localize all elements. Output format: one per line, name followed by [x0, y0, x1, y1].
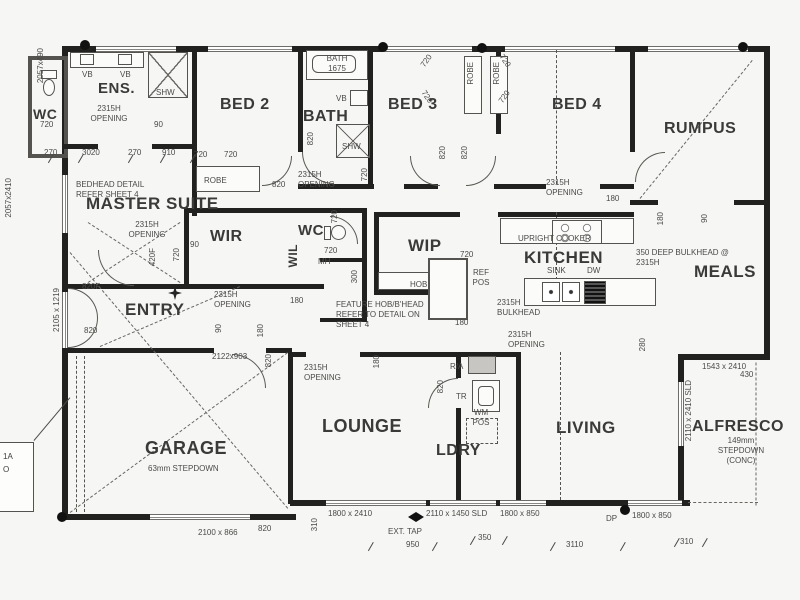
label-dim-720-robe3a: 720 — [419, 53, 435, 70]
label-opening-kitchen: 2315H OPENING — [508, 330, 566, 350]
label-sink-label: SINK — [547, 266, 566, 276]
label-dim-280: 280 — [638, 338, 648, 351]
wall — [600, 184, 634, 189]
dim-tick — [432, 542, 438, 551]
wall — [62, 284, 184, 289]
dim-tick — [550, 542, 556, 551]
label-dim-720-wip: 720 — [460, 250, 473, 260]
wall — [494, 184, 546, 189]
window — [62, 175, 68, 233]
downpipe-dot — [477, 43, 487, 53]
door-arc-bed4 — [466, 156, 496, 186]
wall — [288, 352, 293, 504]
label-dw-label: DW — [587, 266, 600, 276]
label-dim-720-wc1: 720 — [40, 120, 53, 130]
tap-valve-icon — [416, 512, 424, 522]
room-label-wir: WIR — [210, 228, 243, 246]
dashed-line — [556, 50, 557, 184]
label-note-bulkhead-meals: 350 DEEP BULKHEAD @ 2315H — [636, 248, 756, 268]
room-label-rumpus: RUMPUS — [664, 120, 736, 138]
label-dim-1800x2410: 1800 x 2410 — [328, 509, 372, 519]
label-dim-720-robe2a: 720 — [194, 150, 207, 160]
label-opening-master: 2315H OPENING — [116, 220, 178, 240]
label-vb-bath: VB — [336, 94, 347, 104]
label-opening-ens: 2315H OPENING — [80, 104, 138, 124]
toilet-icon — [324, 226, 331, 240]
wall — [374, 212, 460, 217]
label-vb-ens-1: VB — [82, 70, 93, 80]
dim-tick — [470, 536, 476, 545]
label-ext-tap: EXT. TAP — [388, 527, 422, 537]
label-dim-720-master: 720 — [172, 248, 182, 261]
downpipe-dot — [80, 40, 90, 50]
door-arc-bed3 — [410, 156, 440, 186]
label-dim-1800x850-a: 1800 x 850 — [500, 509, 540, 519]
label-note-feature-hob: FEATURE HOB/B'HEAD REFER TO DETAIL ON SH… — [336, 300, 440, 330]
window — [382, 46, 472, 52]
label-dim-2110x2410-sld: 2110 x 2410 SLD — [684, 380, 694, 441]
downpipe-dot — [620, 505, 630, 515]
window — [648, 46, 748, 52]
label-robe-bed2: ROBE — [204, 176, 227, 186]
downpipe-dot — [738, 42, 748, 52]
label-dim-950: 950 — [406, 540, 419, 550]
window — [326, 500, 426, 506]
label-opening-wir: 2315H OPENING — [214, 290, 274, 310]
room-label-bed2: BED 2 — [220, 96, 270, 114]
label-dim-180-entry: 180 — [256, 324, 266, 337]
downpipe-dot — [57, 512, 67, 522]
label-dim-270a: 270 — [44, 148, 57, 158]
wall — [516, 352, 521, 502]
roof-line-alfresco — [688, 502, 758, 503]
wall — [678, 354, 770, 360]
label-dim-180-lounge: 180 — [372, 355, 382, 368]
label-dim-180-rumpus: 180 — [606, 194, 619, 204]
dashed-line-garage — [84, 356, 85, 512]
label-dim-310-left: 310 — [310, 518, 320, 531]
edge-note-line1: 1A — [3, 451, 31, 464]
window-garage — [150, 514, 250, 520]
wall — [184, 284, 324, 289]
label-dim-90-meals: 90 — [700, 214, 710, 223]
room-label-alfresco: ALFRESCO — [692, 418, 784, 436]
label-dim-270b: 270 — [128, 148, 141, 158]
label-dim-90-wir: 90 — [190, 240, 199, 250]
window — [208, 46, 292, 52]
room-label-wil: WIL — [286, 244, 300, 268]
label-dim-90-entry: 90 — [214, 324, 224, 333]
dim-tick — [702, 538, 708, 547]
dishwasher-icon — [584, 281, 606, 304]
label-upright-cooker: UPRIGHT COOKER — [518, 234, 591, 244]
dim-tick — [620, 542, 626, 551]
label-dim-180-meals: 180 — [656, 212, 666, 225]
label-ra-label: R/A — [450, 362, 463, 372]
label-dim-820-bed3: 820 — [438, 146, 448, 159]
label-dim-2100x866: 2100 x 866 — [198, 528, 238, 538]
label-dim-820-master: 820 — [84, 326, 97, 336]
floor-plan: 1A O WC ENS. BED 2 BATH BED 3 BED 4 RUMP… — [0, 0, 800, 600]
label-dim-420f: 420F — [148, 248, 158, 266]
label-bath-tub-label: BATH 1675 — [316, 54, 358, 74]
door-arc-entry-a — [68, 288, 98, 318]
label-dim-820f-master: 820F — [82, 282, 100, 292]
dashed-line-garage — [76, 356, 77, 512]
dim-tick — [502, 536, 508, 545]
room-label-lounge: LOUNGE — [322, 416, 402, 437]
label-dim-820-entry: 820 — [264, 354, 274, 367]
label-dim-720-robe2b: 720 — [224, 150, 237, 160]
window-sliding-door — [430, 500, 496, 506]
label-mh-label: MH — [318, 257, 330, 267]
label-dim-2122x903: 2122x903 — [212, 352, 247, 362]
label-dim-720-wc2: 720 — [330, 210, 340, 223]
label-opening-bed4: 2315H OPENING — [546, 178, 604, 198]
window — [628, 500, 682, 506]
shower-icon — [336, 124, 370, 158]
wall — [368, 46, 373, 188]
downpipe-dot — [378, 42, 388, 52]
label-dim-820-bath: 820 — [306, 132, 316, 145]
label-dim-300-wil: 300 — [350, 270, 360, 283]
wall — [374, 290, 434, 295]
label-robe-bed4: ROBE — [492, 62, 502, 85]
label-dim-2105x1219: 2105 x 1219 — [52, 288, 62, 332]
wall — [630, 200, 658, 205]
door-arc-rumpus — [635, 152, 665, 182]
label-dim-350: 350 — [478, 533, 491, 543]
room-label-bath: BATH — [303, 108, 348, 126]
label-dim-910: 910 — [162, 148, 175, 158]
dim-tick — [368, 542, 374, 551]
label-hob-label: HOB — [410, 280, 427, 290]
wall — [630, 46, 635, 152]
room-label-wip: WIP — [408, 236, 442, 256]
label-robe-bed3: ROBE — [466, 62, 476, 85]
sink-icon — [562, 282, 580, 302]
room-label-garage: GARAGE — [145, 438, 227, 459]
label-dim-1800x850-b: 1800 x 850 — [632, 511, 672, 521]
label-alfresco-stepdown: 149mm STEPDOWN (CONC) — [708, 436, 774, 466]
label-dim-2057x2410: 2057x2410 — [4, 178, 14, 218]
label-dim-180-hall: 180 — [290, 296, 303, 306]
label-dim-820-garage: 820 — [258, 524, 271, 534]
label-dim-820-bed4: 820 — [460, 146, 470, 159]
label-dim-180-kitchen: 180 — [455, 318, 468, 328]
label-dim-820-bed2: 820 — [272, 180, 285, 190]
room-label-entry: ENTRY — [125, 300, 185, 320]
room-label-ldry: LDRY — [436, 442, 481, 460]
room-label-wc2: WC — [298, 222, 324, 239]
label-note-bedhead: BEDHEAD DETAIL REFER SHEET 4 — [76, 180, 166, 200]
wall — [498, 212, 634, 217]
label-shw-bath: SHW — [342, 142, 361, 152]
label-opening-lounge: 2315H OPENING — [304, 363, 360, 383]
wall — [184, 208, 189, 289]
room-label-living: LIVING — [556, 418, 616, 438]
wall — [734, 200, 768, 205]
return-air-box — [468, 356, 496, 374]
tap-valve-icon — [408, 512, 416, 522]
door-arc-master — [98, 250, 134, 286]
label-shw-ens: SHW — [156, 88, 175, 98]
wall — [62, 348, 214, 353]
label-wm-pos: WM POS — [466, 408, 496, 428]
room-label-ens: ENS. — [98, 80, 135, 97]
basin-icon — [350, 90, 368, 106]
label-vb-ens-2: VB — [120, 70, 131, 80]
basin-icon — [118, 54, 132, 65]
window — [500, 500, 546, 506]
label-garage-stepdown: 63mm STEPDOWN — [148, 464, 219, 474]
room-label-bed4: BED 4 — [552, 96, 602, 114]
label-opening-bath: 2315H OPENING — [298, 170, 356, 190]
toilet-icon — [331, 225, 346, 240]
label-dim-90-ens: 90 — [154, 120, 163, 130]
wall — [290, 352, 306, 357]
label-tr-label: TR — [456, 392, 467, 402]
label-dim-2057x490: 2057x490 — [36, 48, 46, 83]
window — [505, 46, 615, 52]
wall — [320, 208, 366, 213]
label-dim-720-bath: 720 — [360, 168, 370, 181]
room-label-kitchen: KITCHEN — [524, 248, 603, 268]
label-dim-2110x1450: 2110 x 1450 SLD — [426, 509, 487, 519]
edge-note-line2: O — [3, 464, 31, 477]
label-dim-3110: 3110 — [566, 540, 583, 550]
label-dp-label: DP — [606, 514, 617, 524]
wall — [298, 46, 303, 152]
trough-inner — [478, 386, 494, 406]
label-dim-310-b: 310 — [680, 537, 693, 547]
label-note-bulkhead-kitchen: 2315H BULKHEAD — [497, 298, 557, 318]
label-dim-720-wil: 720 — [324, 246, 337, 256]
label-dim-3020: 3020 — [82, 148, 100, 158]
basin-icon — [80, 54, 94, 65]
edge-note-box: 1A O — [0, 442, 34, 512]
label-dim-430: 430 — [740, 370, 753, 380]
label-ref-pos-label: REF POS — [468, 268, 494, 288]
label-dim-820-ldry: 820 — [436, 380, 446, 393]
